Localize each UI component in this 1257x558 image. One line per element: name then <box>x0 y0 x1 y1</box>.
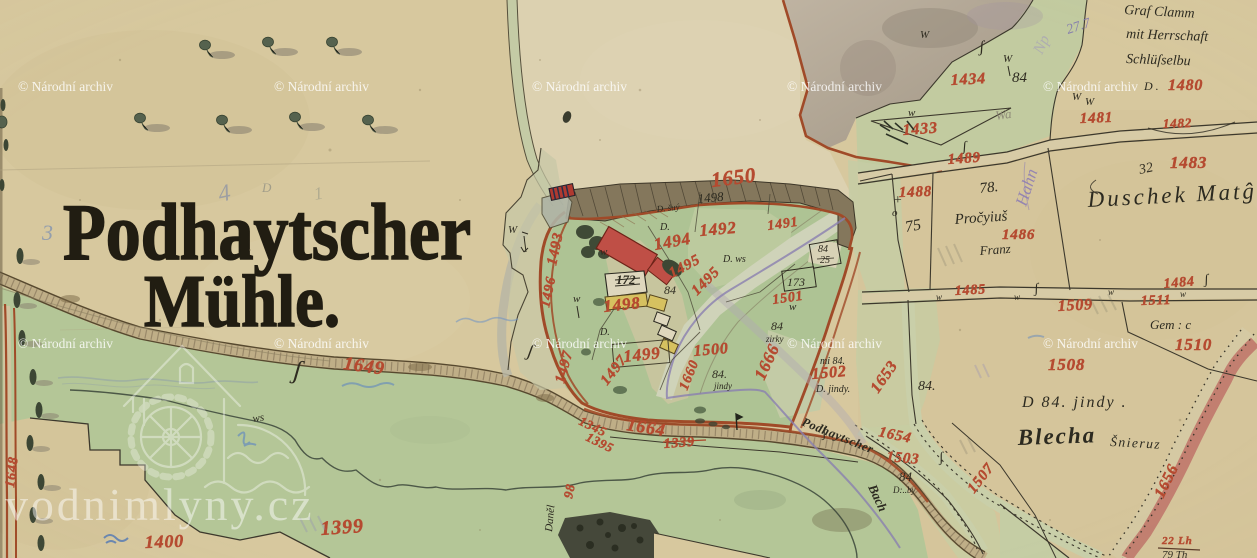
svg-text:© Národní archiv: © Národní archiv <box>274 79 369 94</box>
svg-text:© Národní archiv: © Národní archiv <box>274 336 369 351</box>
svg-text:© Národní archiv: © Národní archiv <box>1043 79 1138 94</box>
svg-text:vodnimlyny.cz: vodnimlyny.cz <box>5 479 313 530</box>
svg-text:© Národní archiv: © Národní archiv <box>787 336 882 351</box>
svg-text:© Národní archiv: © Národní archiv <box>18 336 113 351</box>
svg-text:© Národní archiv: © Národní archiv <box>532 336 627 351</box>
svg-text:© Národní archiv: © Národní archiv <box>787 79 882 94</box>
svg-text:© Národní archiv: © Národní archiv <box>1043 336 1138 351</box>
svg-text:© Národní archiv: © Národní archiv <box>532 79 627 94</box>
svg-text:© Národní archiv: © Národní archiv <box>18 79 113 94</box>
